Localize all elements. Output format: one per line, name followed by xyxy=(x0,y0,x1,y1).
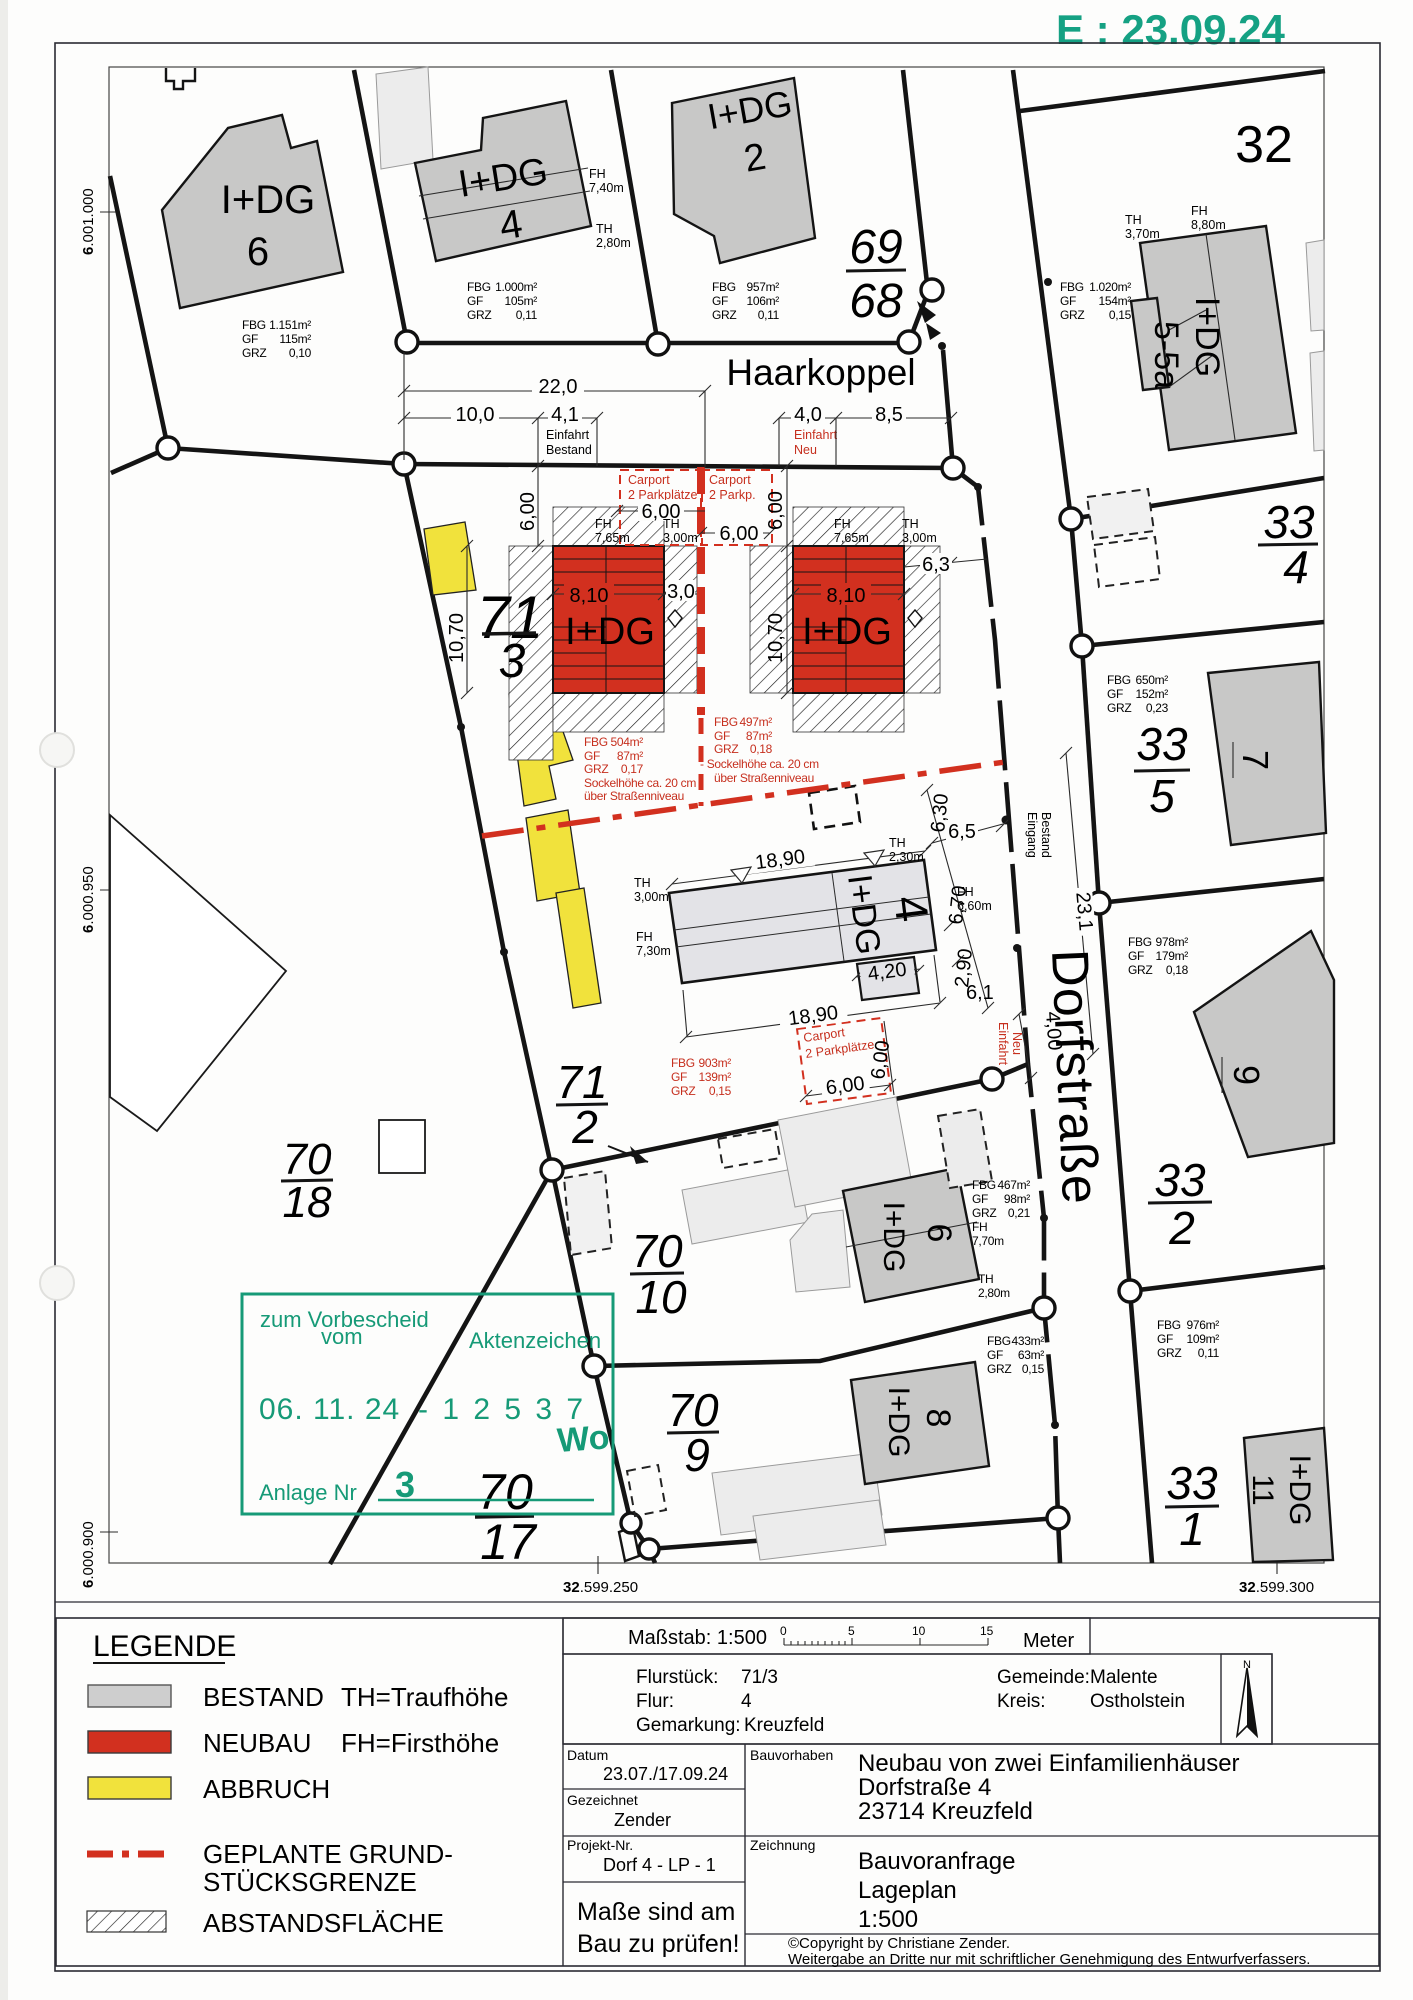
svg-text:FH=Firsthöhe: FH=Firsthöhe xyxy=(341,1728,499,1758)
svg-text:ABSTANDSFLÄCHE: ABSTANDSFLÄCHE xyxy=(203,1908,444,1938)
svg-text:FBG: FBG xyxy=(712,280,736,294)
svg-text:1: 1 xyxy=(1179,1503,1205,1555)
svg-text:GRZ: GRZ xyxy=(1128,963,1152,977)
svg-text:6,00: 6,00 xyxy=(765,491,787,530)
svg-text:Neubau von zwei Einfamilienhäu: Neubau von zwei Einfamilienhäuser xyxy=(858,1750,1240,1777)
svg-text:FH: FH xyxy=(957,885,974,899)
svg-text:70: 70 xyxy=(477,1464,533,1520)
svg-text:Bauvoranfrage: Bauvoranfrage xyxy=(858,1848,1015,1875)
svg-text:TH: TH xyxy=(596,222,613,236)
svg-text:Malente: Malente xyxy=(1090,1667,1158,1688)
svg-text:GF: GF xyxy=(671,1070,687,1084)
svg-text:I+DG: I+DG xyxy=(1283,1455,1316,1526)
svg-text:33: 33 xyxy=(1136,718,1188,770)
svg-text:15: 15 xyxy=(980,1624,994,1638)
svg-text:10,70: 10,70 xyxy=(765,613,787,663)
svg-text:Einfahrt: Einfahrt xyxy=(996,1022,1010,1066)
svg-text:433m²: 433m² xyxy=(1011,1334,1044,1348)
svg-text:Bauvorhaben: Bauvorhaben xyxy=(750,1747,833,1763)
svg-text:Kreuzfeld: Kreuzfeld xyxy=(744,1715,824,1736)
svg-text:über Straßenniveau: über Straßenniveau xyxy=(714,771,814,785)
svg-text:Flur:: Flur: xyxy=(636,1691,674,1712)
svg-text:32.599.300: 32.599.300 xyxy=(1239,1579,1314,1596)
svg-text:FBG: FBG xyxy=(1060,280,1084,294)
svg-text:6: 6 xyxy=(920,1224,958,1243)
svg-text:FH: FH xyxy=(595,517,612,531)
svg-text:GF: GF xyxy=(712,294,728,308)
svg-text:87m²: 87m² xyxy=(746,729,772,743)
svg-text:0: 0 xyxy=(780,1624,787,1638)
svg-text:6,3: 6,3 xyxy=(922,554,950,576)
svg-text:6.001.000: 6.001.000 xyxy=(80,188,97,255)
svg-text:3,70m: 3,70m xyxy=(1125,227,1160,241)
svg-text:LEGENDE: LEGENDE xyxy=(93,1630,236,1663)
svg-text:GF: GF xyxy=(1060,294,1076,308)
svg-text:Weitergabe an Dritte nur mit s: Weitergabe an Dritte nur mit schriftlich… xyxy=(788,1951,1310,1968)
svg-text:2 Parkp.: 2 Parkp. xyxy=(709,488,756,502)
svg-text:TH: TH xyxy=(634,876,651,890)
svg-text:Ostholstein: Ostholstein xyxy=(1090,1691,1185,1712)
svg-text:7,30m: 7,30m xyxy=(636,944,671,958)
svg-text:70: 70 xyxy=(283,1135,332,1184)
svg-text:10,0: 10,0 xyxy=(456,404,495,426)
svg-text:Einfahrt: Einfahrt xyxy=(794,428,838,442)
svg-text:GEPLANTE GRUND-: GEPLANTE GRUND- xyxy=(203,1839,453,1869)
svg-text:8,80m: 8,80m xyxy=(1191,218,1226,232)
svg-text:I+DG: I+DG xyxy=(877,1202,910,1273)
svg-text:GF: GF xyxy=(714,729,730,743)
svg-text:Dorf 4 - LP - 1: Dorf 4 - LP - 1 xyxy=(603,1855,716,1875)
svg-text:32.599.250: 32.599.250 xyxy=(563,1579,638,1596)
svg-text:0,10: 0,10 xyxy=(289,346,312,360)
svg-text:2,30m: 2,30m xyxy=(889,850,924,864)
svg-text:6,5: 6,5 xyxy=(948,821,976,843)
svg-text:GF: GF xyxy=(584,749,600,763)
svg-text:69: 69 xyxy=(849,221,902,274)
svg-text:Carport: Carport xyxy=(709,473,751,487)
svg-text:22,0: 22,0 xyxy=(539,376,578,398)
svg-text:FBG: FBG xyxy=(1128,935,1152,949)
svg-text:10: 10 xyxy=(635,1271,687,1323)
svg-text:4: 4 xyxy=(1283,541,1309,593)
svg-text:Datum: Datum xyxy=(567,1747,608,1763)
svg-text:NEUBAU: NEUBAU xyxy=(203,1728,311,1758)
svg-text:Gemarkung:: Gemarkung: xyxy=(636,1715,741,1736)
svg-text:957m²: 957m² xyxy=(746,280,779,294)
svg-text:I+DG: I+DG xyxy=(221,178,315,222)
svg-text:TH: TH xyxy=(902,517,919,531)
svg-text:FBG: FBG xyxy=(714,715,738,729)
svg-text:FBG: FBG xyxy=(1157,1318,1181,1332)
svg-text:7,65m: 7,65m xyxy=(834,531,869,545)
svg-text:Anlage Nr: Anlage Nr xyxy=(259,1480,357,1505)
svg-text:Sockelhöhe ca. 20 cm: Sockelhöhe ca. 20 cm xyxy=(584,776,696,790)
svg-text:Neu: Neu xyxy=(794,443,817,457)
svg-text:0,11: 0,11 xyxy=(758,308,780,322)
svg-text:0,15: 0,15 xyxy=(1022,1362,1045,1376)
svg-text:3,00m: 3,00m xyxy=(663,531,698,545)
svg-text:70: 70 xyxy=(631,1225,683,1277)
svg-text:GRZ: GRZ xyxy=(584,762,608,776)
svg-text:5: 5 xyxy=(848,1624,855,1638)
svg-text:23714 Kreuzfeld: 23714 Kreuzfeld xyxy=(858,1798,1033,1825)
svg-text:06. 11. 24: 06. 11. 24 xyxy=(259,1393,400,1426)
svg-text:3: 3 xyxy=(499,635,526,688)
svg-text:BESTAND: BESTAND xyxy=(203,1682,324,1712)
svg-text:Einfahrt: Einfahrt xyxy=(546,428,590,442)
svg-text:TH: TH xyxy=(889,836,906,850)
svg-text:GF: GF xyxy=(242,332,258,346)
svg-text:903m²: 903m² xyxy=(698,1056,731,1070)
svg-text:TH=Traufhöhe: TH=Traufhöhe xyxy=(341,1682,508,1712)
svg-text:0,23: 0,23 xyxy=(1146,701,1169,715)
svg-text:32: 32 xyxy=(1235,116,1293,174)
svg-text:0,15: 0,15 xyxy=(1109,308,1132,322)
svg-text:FH: FH xyxy=(972,1220,987,1234)
svg-text:FH: FH xyxy=(1191,204,1208,218)
svg-text:I+DG: I+DG xyxy=(565,611,655,653)
svg-text:GRZ: GRZ xyxy=(987,1362,1011,1376)
svg-text:Neu: Neu xyxy=(1010,1032,1024,1055)
svg-text:GRZ: GRZ xyxy=(671,1084,695,1098)
svg-text:0,21: 0,21 xyxy=(1008,1206,1031,1220)
svg-text:8,5: 8,5 xyxy=(875,404,903,426)
svg-text:976m²: 976m² xyxy=(1186,1318,1219,1332)
svg-text:0,11: 0,11 xyxy=(516,308,538,322)
svg-text:FBG: FBG xyxy=(671,1056,695,1070)
svg-text:9: 9 xyxy=(684,1429,710,1481)
svg-text:179m²: 179m² xyxy=(1155,949,1188,963)
svg-text:FBG: FBG xyxy=(584,735,608,749)
svg-text:GF: GF xyxy=(972,1192,988,1206)
svg-text:650m²: 650m² xyxy=(1135,673,1168,687)
svg-text:68: 68 xyxy=(849,275,903,328)
svg-text:7,65m: 7,65m xyxy=(595,531,630,545)
svg-text:4,1: 4,1 xyxy=(551,404,579,426)
svg-text:GRZ: GRZ xyxy=(467,308,491,322)
svg-text:109m²: 109m² xyxy=(1186,1332,1219,1346)
svg-text:5-5a: 5-5a xyxy=(1147,321,1185,389)
svg-text:1.020m²: 1.020m² xyxy=(1089,280,1131,294)
svg-text:10,70: 10,70 xyxy=(446,613,468,663)
svg-text:Maße sind am: Maße sind am xyxy=(577,1898,735,1926)
svg-text:Projekt-Nr.: Projekt-Nr. xyxy=(567,1837,633,1853)
svg-text:Zeichnung: Zeichnung xyxy=(750,1837,815,1853)
svg-text:7,70m: 7,70m xyxy=(972,1234,1004,1248)
svg-text:2: 2 xyxy=(571,1101,598,1153)
svg-text:6: 6 xyxy=(247,230,269,274)
svg-text:Gemeinde:: Gemeinde: xyxy=(997,1667,1090,1688)
svg-text:0,18: 0,18 xyxy=(1166,963,1189,977)
svg-text:FBG: FBG xyxy=(467,280,491,294)
svg-text:2 Parkplätze: 2 Parkplätze xyxy=(628,488,698,502)
svg-text:Dorfstraße 4: Dorfstraße 4 xyxy=(858,1774,991,1801)
svg-text:I+DG: I+DG xyxy=(802,611,892,653)
svg-text:2,80m: 2,80m xyxy=(978,1286,1010,1300)
svg-text:I+DG: I+DG xyxy=(882,1387,915,1458)
svg-text:0,15: 0,15 xyxy=(709,1084,732,1098)
svg-text:33: 33 xyxy=(1154,1154,1206,1206)
svg-text:E : 23.09.24: E : 23.09.24 xyxy=(1056,6,1285,53)
svg-text:I+DG: I+DG xyxy=(1188,297,1226,377)
svg-text:FBG: FBG xyxy=(987,1334,1011,1348)
svg-text:71/3: 71/3 xyxy=(741,1667,778,1688)
svg-text:152m²: 152m² xyxy=(1135,687,1168,701)
svg-text:7: 7 xyxy=(1235,750,1276,770)
svg-text:2: 2 xyxy=(1168,1202,1195,1254)
svg-text:Kreis:: Kreis: xyxy=(997,1691,1046,1712)
svg-text:6,60m: 6,60m xyxy=(957,899,992,913)
svg-text:Meter: Meter xyxy=(1023,1630,1074,1652)
svg-text:33: 33 xyxy=(1166,1457,1218,1509)
svg-text:3,00m: 3,00m xyxy=(634,890,669,904)
svg-text:Gezeichnet: Gezeichnet xyxy=(567,1792,638,1808)
svg-text:23,1: 23,1 xyxy=(1071,891,1096,932)
svg-text:497m²: 497m² xyxy=(739,715,772,729)
svg-text:6.000.950: 6.000.950 xyxy=(80,866,97,933)
svg-text:FBG: FBG xyxy=(972,1178,996,1192)
svg-text:Dorfstraße: Dorfstraße xyxy=(1040,948,1109,1206)
svg-text:Flurstück:: Flurstück: xyxy=(636,1667,718,1688)
svg-text:FBG: FBG xyxy=(1107,673,1131,687)
svg-text:3,00m: 3,00m xyxy=(902,531,937,545)
svg-text:6.000.900: 6.000.900 xyxy=(80,1521,97,1588)
svg-text:87m²: 87m² xyxy=(617,749,643,763)
svg-text:6,00: 6,00 xyxy=(720,523,759,545)
svg-text:0,11: 0,11 xyxy=(1198,1346,1220,1360)
svg-text:ABBRUCH: ABBRUCH xyxy=(203,1774,330,1804)
svg-text:FBG: FBG xyxy=(242,318,266,332)
svg-text:TH: TH xyxy=(978,1272,993,1286)
svg-text:GF: GF xyxy=(1107,687,1123,701)
svg-text:6,00: 6,00 xyxy=(517,492,539,531)
svg-text:GRZ: GRZ xyxy=(972,1206,996,1220)
svg-text:TH: TH xyxy=(663,517,680,531)
svg-text:1.000m²: 1.000m² xyxy=(495,280,537,294)
svg-text:Wo: Wo xyxy=(556,1418,611,1460)
svg-text:106m²: 106m² xyxy=(746,294,779,308)
svg-text:Bestand: Bestand xyxy=(1039,812,1053,858)
svg-text:GRZ: GRZ xyxy=(1060,308,1084,322)
svg-text:978m²: 978m² xyxy=(1155,935,1188,949)
svg-text:8: 8 xyxy=(919,1409,957,1428)
svg-text:GF: GF xyxy=(467,294,483,308)
svg-text:Haarkoppel: Haarkoppel xyxy=(726,352,915,393)
svg-text:STÜCKSGRENZE: STÜCKSGRENZE xyxy=(203,1867,417,1897)
svg-text:GF: GF xyxy=(987,1348,1003,1362)
svg-text:105m²: 105m² xyxy=(504,294,537,308)
svg-text:9: 9 xyxy=(1226,1065,1267,1085)
svg-text:- Sockelhöhe ca. 20 cm: - Sockelhöhe ca. 20 cm xyxy=(700,757,819,771)
svg-text:1.151m²: 1.151m² xyxy=(269,318,311,332)
svg-text:467m²: 467m² xyxy=(997,1178,1030,1192)
svg-text:Lageplan: Lageplan xyxy=(858,1877,957,1904)
svg-text:GF: GF xyxy=(1128,949,1144,963)
svg-text:GRZ: GRZ xyxy=(714,742,738,756)
svg-text:10: 10 xyxy=(912,1624,926,1638)
svg-text:FH: FH xyxy=(636,930,653,944)
svg-text:154m²: 154m² xyxy=(1098,294,1131,308)
svg-text:3,0: 3,0 xyxy=(667,581,695,603)
svg-text:23.07./17.09.24: 23.07./17.09.24 xyxy=(603,1764,728,1784)
svg-text:0,18: 0,18 xyxy=(750,742,773,756)
svg-text:©Copyright by Christiane Zende: ©Copyright by Christiane Zender. xyxy=(788,1935,1010,1952)
svg-text:11: 11 xyxy=(1246,1474,1279,1505)
svg-text:TH: TH xyxy=(1125,213,1142,227)
svg-text:139m²: 139m² xyxy=(698,1070,731,1084)
svg-text:GF: GF xyxy=(1157,1332,1173,1346)
svg-text:1:500: 1:500 xyxy=(858,1906,918,1933)
svg-text:63m²: 63m² xyxy=(1018,1348,1044,1362)
svg-text:GRZ: GRZ xyxy=(712,308,736,322)
svg-text:Aktenzeichen: Aktenzeichen xyxy=(469,1328,601,1353)
svg-text:0,17: 0,17 xyxy=(621,762,644,776)
svg-text:vom: vom xyxy=(321,1324,363,1349)
svg-text:über Straßenniveau: über Straßenniveau xyxy=(584,789,684,803)
svg-text:7,40m: 7,40m xyxy=(589,181,624,195)
svg-text:5: 5 xyxy=(1149,770,1175,822)
svg-text:2,80m: 2,80m xyxy=(596,236,631,250)
svg-text:GRZ: GRZ xyxy=(1157,1346,1181,1360)
svg-text:4,0: 4,0 xyxy=(794,404,822,426)
svg-text:FH: FH xyxy=(834,517,851,531)
svg-text:GRZ: GRZ xyxy=(242,346,266,360)
svg-text:504m²: 504m² xyxy=(610,735,643,749)
svg-text:6,1: 6,1 xyxy=(966,982,994,1004)
svg-text:4: 4 xyxy=(741,1691,752,1712)
svg-text:Bau zu prüfen!: Bau zu prüfen! xyxy=(577,1930,740,1958)
svg-text:Zender: Zender xyxy=(614,1810,671,1830)
svg-text:8,10: 8,10 xyxy=(570,585,609,607)
svg-text:Eingang: Eingang xyxy=(1025,812,1039,858)
svg-text:98m²: 98m² xyxy=(1004,1192,1030,1206)
svg-text:17: 17 xyxy=(480,1514,538,1570)
svg-text:8,10: 8,10 xyxy=(827,585,866,607)
svg-text:Carport: Carport xyxy=(628,473,670,487)
svg-text:GRZ: GRZ xyxy=(1107,701,1131,715)
svg-text:Bestand: Bestand xyxy=(546,443,592,457)
svg-text:Maßstab: 1:500: Maßstab: 1:500 xyxy=(628,1627,767,1649)
svg-text:115m²: 115m² xyxy=(279,332,311,346)
svg-text:FH: FH xyxy=(589,167,606,181)
svg-text:18: 18 xyxy=(283,1178,332,1227)
